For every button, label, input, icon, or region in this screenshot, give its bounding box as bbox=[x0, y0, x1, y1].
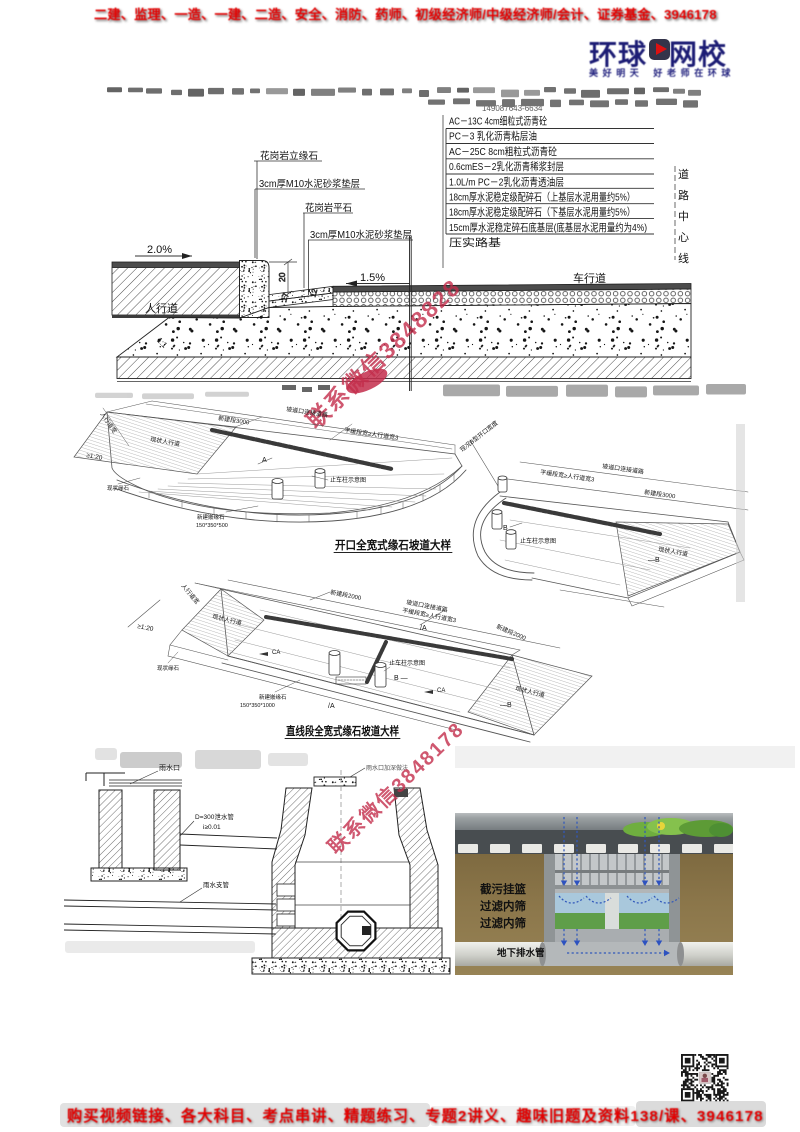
svg-text:CA: CA bbox=[272, 650, 280, 656]
svg-text:中: 中 bbox=[678, 210, 689, 223]
svg-text:B: B bbox=[503, 525, 508, 532]
svg-text:D=300泄水管: D=300泄水管 bbox=[195, 812, 234, 821]
svg-text:止车柱示意图: 止车柱示意图 bbox=[330, 476, 366, 484]
svg-text:雨水口: 雨水口 bbox=[159, 763, 180, 772]
svg-text:雨水支管: 雨水支管 bbox=[203, 880, 230, 889]
svg-text:15cm厚水泥稳定碎石底基层(底基层水泥用量约为4%): 15cm厚水泥稳定碎石底基层(底基层水泥用量约为4%) bbox=[449, 221, 647, 234]
svg-text:止车柱示意图: 止车柱示意图 bbox=[520, 537, 556, 545]
svg-text:1.0L/m PC－2乳化沥青透油层: 1.0L/m PC－2乳化沥青透油层 bbox=[449, 175, 564, 188]
svg-text:平缓段宽≥人行道宽3: 平缓段宽≥人行道宽3 bbox=[344, 426, 400, 442]
svg-text:18cm厚水泥稳定级配碎石（下基层水泥用量约5%）: 18cm厚水泥稳定级配碎石（下基层水泥用量约5%） bbox=[449, 206, 635, 219]
svg-text:压实路基: 压实路基 bbox=[449, 236, 502, 249]
svg-text:150*350*500: 150*350*500 bbox=[196, 523, 228, 529]
svg-text:AC－13C 4cm细粒式沥青砼: AC－13C 4cm细粒式沥青砼 bbox=[449, 115, 547, 128]
svg-text:/A: /A bbox=[328, 703, 335, 710]
svg-text:花岗岩平石: 花岗岩平石 bbox=[305, 201, 352, 214]
svg-text:人行道宽: 人行道宽 bbox=[179, 582, 201, 606]
svg-text:≥1:20: ≥1:20 bbox=[137, 623, 155, 633]
svg-text:3cm厚M10水泥砂浆垫层: 3cm厚M10水泥砂浆垫层 bbox=[259, 177, 360, 190]
svg-text:20: 20 bbox=[277, 272, 287, 282]
svg-text:1.5%: 1.5% bbox=[360, 272, 385, 284]
svg-text:18cm厚水泥稳定级配碎石（上基层水泥用量约5%）: 18cm厚水泥稳定级配碎石（上基层水泥用量约5%） bbox=[449, 191, 635, 204]
svg-text:—B: —B bbox=[500, 702, 512, 709]
svg-text:新建嵌缘石: 新建嵌缘石 bbox=[259, 693, 287, 701]
svg-text:0.6cmES－2乳化沥青稀浆封层: 0.6cmES－2乳化沥青稀浆封层 bbox=[449, 160, 564, 173]
svg-text:止车柱示意图: 止车柱示意图 bbox=[389, 659, 425, 667]
svg-text:AC－25C 8cm粗粒式沥青砼: AC－25C 8cm粗粒式沥青砼 bbox=[449, 145, 557, 158]
svg-text:—B: —B bbox=[648, 557, 660, 564]
svg-text:现状缘石: 现状缘石 bbox=[107, 484, 130, 492]
svg-text:PC－3 乳化沥青粘层油: PC－3 乳化沥青粘层油 bbox=[449, 130, 537, 143]
svg-text:新建段2000: 新建段2000 bbox=[330, 588, 363, 602]
svg-text:2.0%: 2.0% bbox=[147, 244, 172, 256]
svg-text:i≥0.01: i≥0.01 bbox=[203, 824, 221, 831]
svg-text:线: 线 bbox=[678, 251, 689, 265]
svg-text:直线段全宽式缘石坡道大样: 直线段全宽式缘石坡道大样 bbox=[286, 724, 399, 738]
svg-text:3cm厚M10水泥砂浆垫层: 3cm厚M10水泥砂浆垫层 bbox=[310, 228, 412, 241]
svg-text:人行道: 人行道 bbox=[145, 301, 178, 315]
svg-text:新建嵌缘石: 新建嵌缘石 bbox=[197, 513, 225, 521]
svg-text:花岗岩立缘石: 花岗岩立缘石 bbox=[260, 149, 318, 162]
svg-text:路: 路 bbox=[678, 189, 689, 202]
svg-text:现况B型开口宽度: 现况B型开口宽度 bbox=[458, 419, 499, 454]
svg-text:道: 道 bbox=[678, 167, 689, 181]
svg-text:150*350*1000: 150*350*1000 bbox=[240, 703, 275, 709]
svg-text:车行道: 车行道 bbox=[573, 271, 606, 285]
svg-text:/A: /A bbox=[420, 625, 427, 632]
svg-text:新建段2000: 新建段2000 bbox=[495, 622, 528, 642]
svg-text:B —: B — bbox=[394, 675, 408, 682]
svg-text:开口全宽式缘石坡道大样: 开口全宽式缘石坡道大样 bbox=[335, 538, 451, 552]
svg-text:CA: CA bbox=[437, 688, 445, 694]
svg-text:现状缘石: 现状缘石 bbox=[157, 664, 180, 672]
svg-text:心: 心 bbox=[678, 231, 689, 244]
svg-text:平缓段宽≥人行道宽3: 平缓段宽≥人行道宽3 bbox=[540, 468, 596, 484]
svg-text:新建段3000: 新建段3000 bbox=[218, 414, 251, 427]
